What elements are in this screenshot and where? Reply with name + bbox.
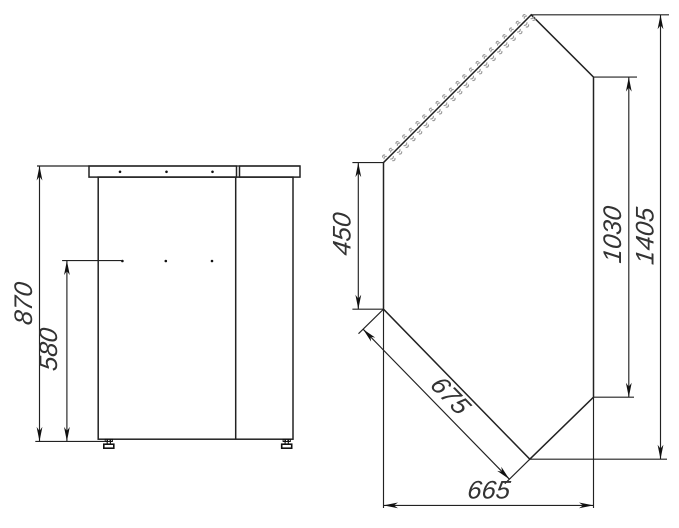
svg-text:665: 665	[466, 477, 513, 505]
svg-text:1405: 1405	[631, 205, 659, 266]
svg-text:580: 580	[35, 326, 63, 373]
svg-text:450: 450	[329, 210, 357, 257]
svg-text:870: 870	[10, 280, 38, 327]
svg-text:1030: 1030	[599, 204, 627, 265]
